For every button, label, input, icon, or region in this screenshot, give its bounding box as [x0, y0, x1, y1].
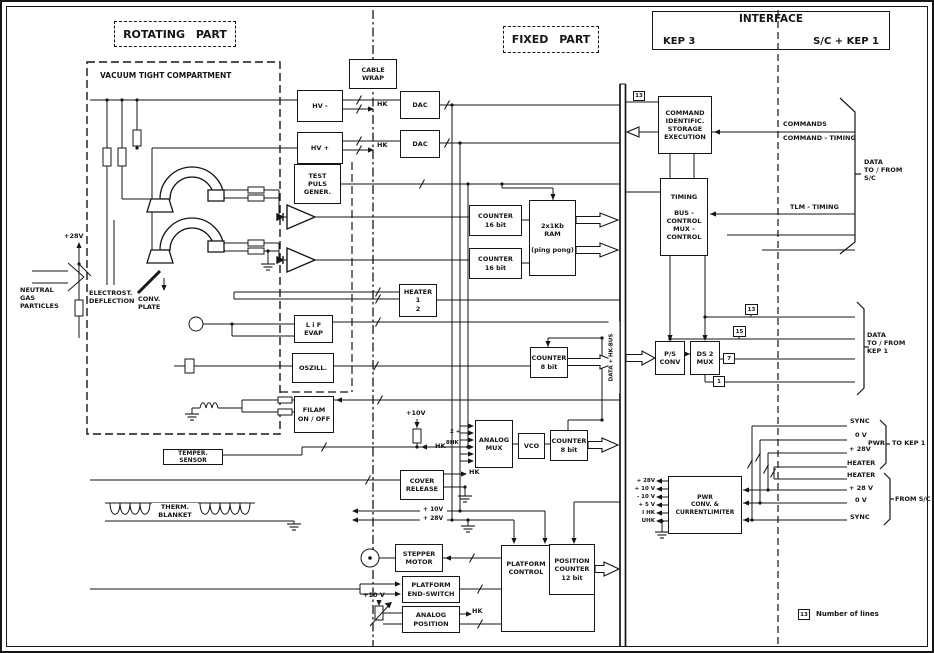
- oszill-block: OSZILL.: [292, 353, 334, 383]
- diode-icon: [277, 214, 283, 220]
- line-count-box-13: 13: [745, 304, 758, 315]
- rotating-part-title: ROTATING PART: [114, 21, 236, 47]
- amplifier-triangles: [277, 205, 315, 272]
- legend-number-box: 13: [798, 609, 810, 620]
- detector-funnel: [147, 199, 173, 212]
- interface-sc-kep1-label: S/C + KEP 1: [813, 36, 879, 47]
- data-hk-bus-label: DATA + HK-BUS: [609, 322, 620, 394]
- hk-label-2: HK: [377, 141, 387, 149]
- counter-8bit-block-1: COUNTER 8 bit: [530, 347, 568, 378]
- ds2-mux-block: DS 2 MUX: [690, 341, 720, 375]
- commands-label: COMMANDS: [783, 120, 827, 128]
- evaporator-symbol: [189, 317, 203, 331]
- therm-blanket-label: THERM. BLANKET: [152, 503, 198, 519]
- plus10v-dist-label: + 10V: [422, 506, 444, 514]
- schematic-page: ROTATING PART FIXED PART INTERFACE KEP 3…: [0, 0, 934, 653]
- resistor: [103, 148, 111, 166]
- counter-8bit-block-2: COUNTER 8 bit: [550, 430, 588, 461]
- from-sc-label: FROM S/C: [895, 495, 931, 503]
- resistor: [75, 300, 83, 316]
- plus28v-out-label: + 28V: [849, 445, 871, 453]
- to-kep1-label: TO KEP 1: [892, 439, 925, 447]
- temperature-sensor-block: TEMPER. SENSOR: [163, 449, 223, 465]
- sync-in-label: SYNC: [850, 513, 870, 521]
- counter-16bit-block-1: COUNTER 16 bit: [469, 205, 522, 236]
- cable-wrap-block: CABLE WRAP: [349, 59, 397, 89]
- hk-label-5: HK: [472, 607, 482, 615]
- diode-icon: [277, 257, 283, 263]
- stepper-motor-block: STEPPER MOTOR: [395, 544, 443, 572]
- timing-bus-control-block: TIMING BUS - CONTROL MUX - CONTROL: [660, 178, 708, 256]
- resistor: [278, 409, 292, 415]
- hk-label-4: HK: [469, 468, 479, 476]
- pwr-converter-block: PWR CONV. & CURRENTLIMITER: [668, 476, 742, 534]
- legend-text: Number of lines: [816, 610, 879, 619]
- resistor: [248, 248, 264, 254]
- data-to-from-kep1-label: DATA TO / FROM KEP 1: [867, 331, 905, 355]
- wiring-layer: [2, 2, 934, 653]
- mux-input-label-a: 2 +: [450, 429, 460, 436]
- heater-block: HEATER 1 2: [399, 284, 437, 317]
- hk-label-3: HK: [435, 442, 445, 450]
- line-count-box-7: 7: [723, 353, 735, 364]
- sync-out-label: SYNC: [850, 417, 870, 425]
- analog-position-block: ANALOG POSITION: [402, 606, 460, 633]
- hv-minus-block: HV -: [297, 90, 343, 122]
- plus28v-left-label: +28V: [64, 232, 84, 240]
- resistor: [118, 148, 126, 166]
- platform-end-switch-block: PLATFORM END-SWITCH: [402, 576, 460, 603]
- plus10v-label: +10V: [406, 409, 426, 417]
- hv-plus-block: HV +: [297, 132, 343, 164]
- tlm-timing-label: TLM - TIMING: [790, 203, 839, 211]
- line-count-box-1: 1: [713, 376, 725, 387]
- vco-block: VCO: [518, 433, 545, 459]
- command-timing-label: COMMAND - TIMING: [783, 134, 856, 142]
- lif-evap-block: L i F EVAP: [294, 315, 333, 343]
- crystal-symbol: [185, 359, 194, 373]
- coil-icon: [200, 403, 218, 408]
- neutral-gas-label: NEUTRAL GAS PARTICLES: [20, 286, 59, 310]
- zero-v-in-label: 0 V: [855, 496, 867, 504]
- heater-in-label: HEATER: [847, 471, 875, 479]
- heater-out-label: HEATER: [847, 459, 875, 467]
- analog-mux-block: ANALOG MUX: [475, 420, 513, 468]
- zero-v-out-label: 0 V: [855, 431, 867, 439]
- counter-16bit-block-2: COUNTER 16 bit: [469, 248, 522, 279]
- resistor: [278, 397, 292, 403]
- plus28v-in-label: + 28 V: [849, 484, 873, 492]
- line-count-box-cmd: 13: [633, 91, 645, 101]
- resistor: [133, 130, 141, 146]
- conversion-plate: [138, 271, 160, 293]
- resistor: [413, 429, 421, 443]
- wires: [32, 10, 855, 647]
- thermal-blanket: [105, 503, 294, 524]
- mux-input-label-b: 8HK: [446, 440, 459, 447]
- dac-block-2: DAC: [400, 130, 440, 158]
- command-block: COMMAND IDENTIFIC. STORAGE EXECUTION: [658, 96, 712, 154]
- interface-kep3-label: KEP 3: [663, 36, 695, 47]
- electrostatic-deflection-label: ELECTROST. DEFLECTION: [89, 289, 134, 305]
- filament-block: FILAM ON / OFF: [294, 396, 334, 433]
- data-to-from-sc-label: DATA TO / FROM S/C: [864, 158, 902, 182]
- resistor: [248, 187, 264, 193]
- detector-funnel: [147, 250, 173, 263]
- ps-conv-block: P/S CONV: [655, 341, 685, 375]
- plus28v-dist-label: + 28V: [422, 515, 444, 523]
- ram-block: 2x1Kb RAM (ping pong): [529, 200, 576, 276]
- position-counter-block: POSITION COUNTER 12 bit: [549, 544, 595, 595]
- dac-block-1: DAC: [400, 91, 440, 119]
- resistor: [248, 240, 264, 246]
- hk-label-1: HK: [377, 100, 387, 108]
- interface-title: INTERFACE: [653, 13, 889, 25]
- resistor: [248, 195, 264, 201]
- conversion-plate-label: CONV. PLATE: [138, 295, 160, 311]
- line-count-box-15: 15: [733, 326, 746, 337]
- fixed-part-title: FIXED PART: [503, 26, 599, 53]
- vacuum-compartment-title: VACUUM TIGHT COMPARTMENT: [100, 71, 231, 80]
- channeltron-detectors: [147, 167, 224, 263]
- cover-release-block: COVER RELEASE: [400, 470, 444, 500]
- platform-control-label: PLATFORM CONTROL: [503, 560, 549, 576]
- test-puls-gener-block: TEST PULS GENER.: [294, 164, 341, 204]
- pwr-rails-label: + 28V + 10 V - 10 V + 5 V I HK UHK: [621, 477, 655, 525]
- plus10v-position-label: +10 V: [363, 591, 385, 599]
- interface-header: INTERFACE KEP 3 S/C + KEP 1: [652, 11, 890, 50]
